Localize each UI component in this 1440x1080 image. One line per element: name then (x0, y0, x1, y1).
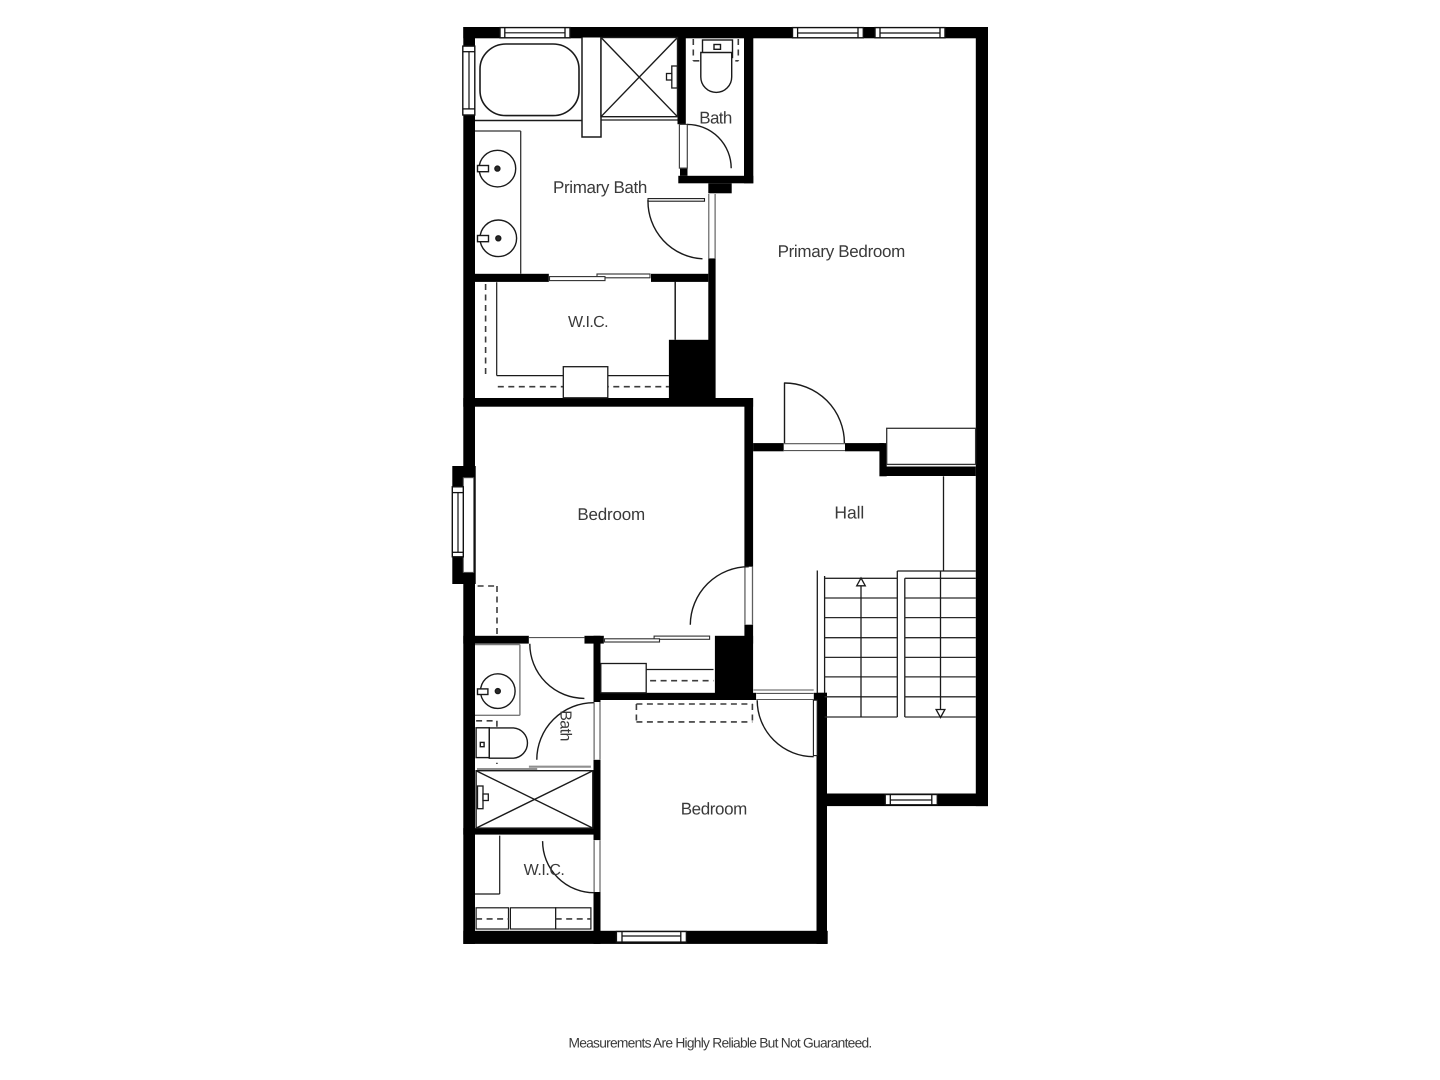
svg-text:Bath: Bath (557, 710, 574, 741)
svg-text:Primary Bedroom: Primary Bedroom (778, 242, 906, 261)
svg-text:Hall: Hall (834, 503, 864, 523)
svg-text:W.I.C.: W.I.C. (568, 314, 608, 331)
svg-text:Measurements Are Highly Reliab: Measurements Are Highly Reliable But Not… (568, 1036, 871, 1051)
svg-text:Bath: Bath (699, 109, 732, 128)
svg-text:Bedroom: Bedroom (681, 799, 747, 818)
svg-text:Primary Bath: Primary Bath (553, 178, 647, 197)
svg-text:W.I.C.: W.I.C. (524, 862, 565, 879)
svg-text:Bedroom: Bedroom (577, 505, 645, 524)
